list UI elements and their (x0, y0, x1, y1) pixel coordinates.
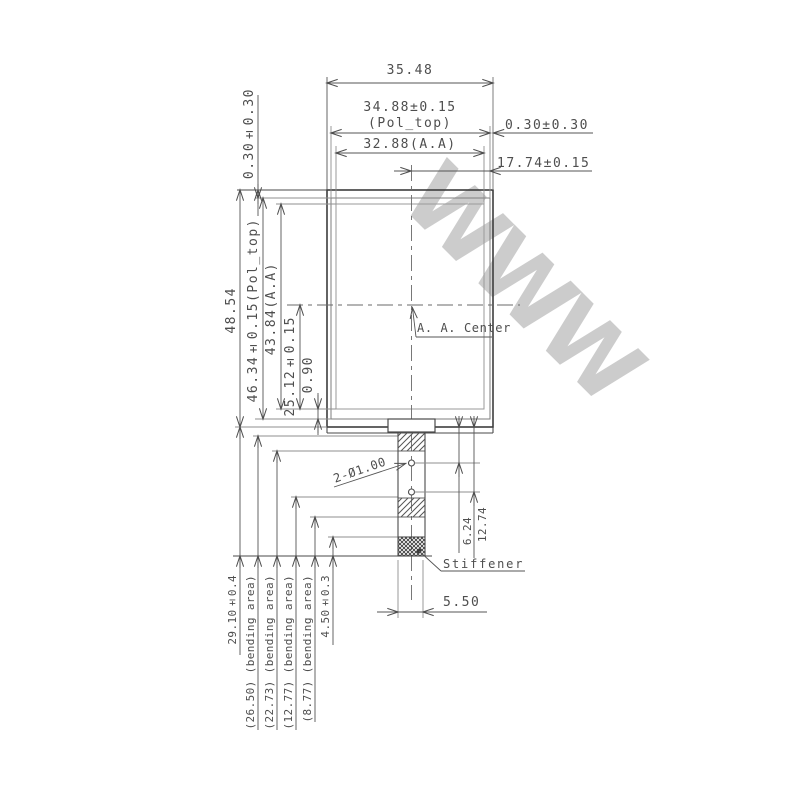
dim-bending-12-77: (12.77) (bending area) (282, 575, 295, 730)
dim-pol-width-note: (Pol_top) (368, 117, 452, 130)
technical-drawing: WWW (0, 0, 800, 800)
dim-fpc-width: 5.50 (443, 596, 480, 609)
leader-lines (334, 308, 525, 571)
dim-center-to-aa-bottom: 25.12±0.15 (284, 316, 298, 416)
alignment-hole-2 (409, 489, 415, 495)
polarizer-outline (331, 198, 490, 419)
active-area-outline (336, 204, 484, 409)
dim-bending-22-73: (22.73) (bending area) (263, 575, 276, 730)
dim-overall-width: 35.48 (387, 64, 434, 77)
dim-pol-height: 46.34±0.15(Pol_top) (247, 218, 261, 402)
dim-bending-26-50: (26.50) (bending area) (244, 575, 257, 730)
dim-pol-width: 34.88±0.15 (363, 101, 456, 114)
alignment-hole-1 (409, 460, 415, 466)
dim-right-edge-offset: 0.30±0.30 (505, 119, 589, 132)
fpc-hatch-lower (398, 498, 425, 517)
stiffener-label: Stiffener (443, 558, 524, 571)
dim-bending-29-10: 29.10±0.4 (226, 575, 239, 645)
fpc-tab (388, 419, 435, 432)
panel-outline (327, 190, 493, 433)
aa-center-label: A. A. Center (417, 322, 511, 335)
dim-hole2-offset: 12.74 (476, 507, 489, 542)
dim-aa-height: 43.84(A.A) (265, 262, 279, 355)
extension-lines (235, 77, 493, 427)
fpc-hatch-upper (398, 433, 425, 451)
dim-aa-width: 32.88(A.A) (363, 138, 456, 151)
dim-overall-height: 48.54 (225, 287, 239, 334)
dim-hole1-offset: 6.24 (461, 517, 474, 545)
dim-bending-4-50: 4.50±0.3 (319, 575, 332, 638)
dim-top-edge-offset: 0.30±0.30 (243, 88, 257, 179)
dim-aa-pol-gap: 0.90 (302, 356, 316, 393)
dim-half-width: 17.74±0.15 (497, 157, 590, 170)
dim-bending-8-77: (8.77) (bending area) (301, 575, 314, 722)
